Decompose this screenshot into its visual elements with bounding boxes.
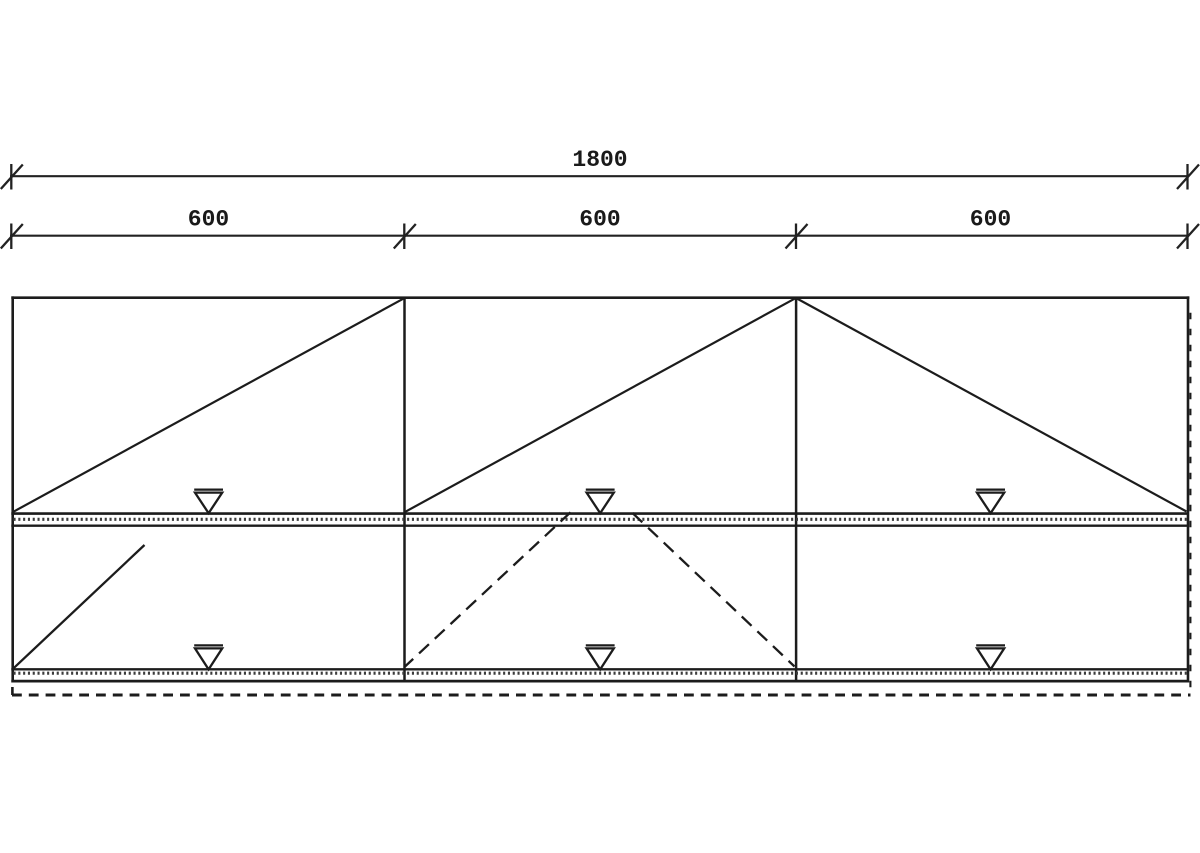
svg-text:600: 600 [579,206,620,232]
svg-text:600: 600 [188,206,229,232]
svg-text:1800: 1800 [572,147,627,173]
svg-text:600: 600 [970,206,1011,232]
